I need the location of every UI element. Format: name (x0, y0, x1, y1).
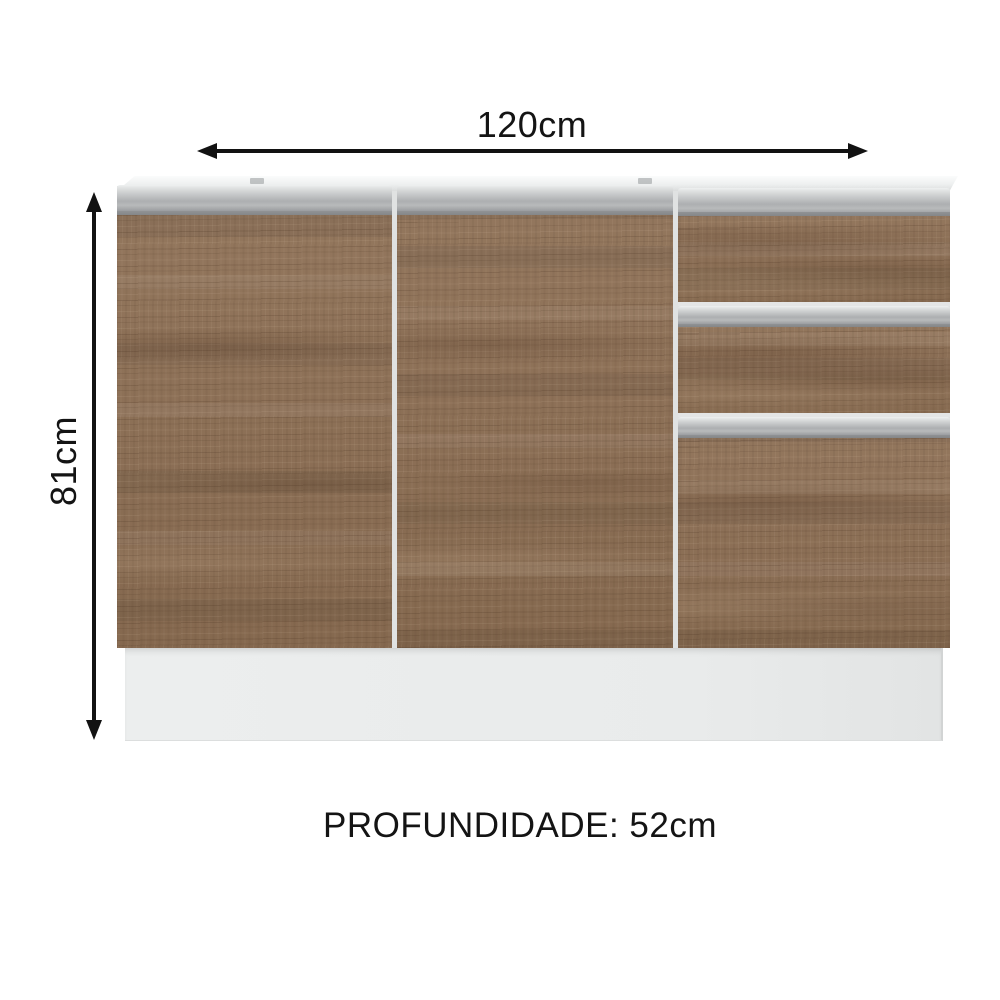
cabinet (0, 0, 1000, 1000)
top-rim-bracket (250, 178, 264, 184)
cabinet-plinth (125, 648, 943, 741)
drawer-3-handle (678, 417, 950, 435)
left-door-handle (117, 185, 392, 211)
middle-door-handle (397, 185, 673, 211)
drawer-front-3 (678, 438, 950, 648)
middle-door (397, 215, 673, 648)
drawer-1-handle (678, 188, 950, 214)
top-rim-bracket (638, 178, 652, 184)
left-door (117, 215, 392, 648)
drawer-front-2 (678, 327, 950, 413)
drawer-front-1 (678, 216, 950, 302)
product-dimension-diagram: 120cm 81cm (0, 0, 1000, 1000)
depth-dimension-label: PROFUNDIDADE: 52cm (0, 806, 1000, 846)
drawer-2-handle (678, 306, 950, 324)
